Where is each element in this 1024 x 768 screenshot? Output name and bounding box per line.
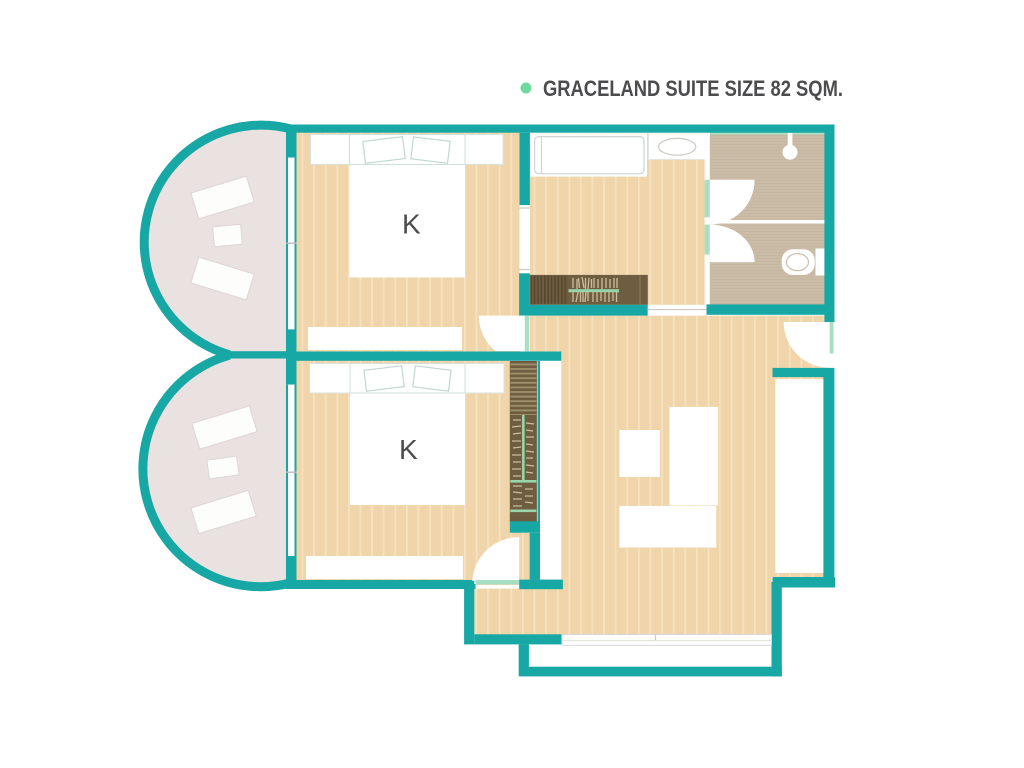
svg-text:K: K xyxy=(402,209,421,240)
svg-text:GRACELAND SUITE SIZE 82 SQM.: GRACELAND SUITE SIZE 82 SQM. xyxy=(543,76,843,101)
svg-text:K: K xyxy=(399,434,418,465)
